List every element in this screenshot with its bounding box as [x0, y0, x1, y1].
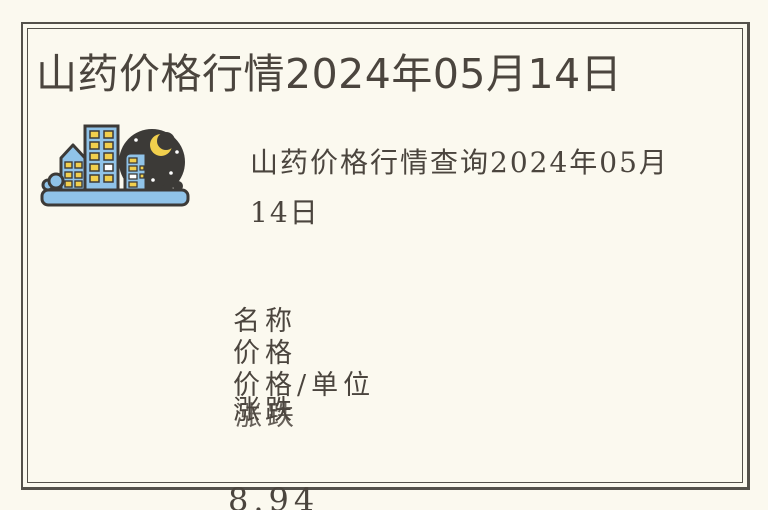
table-header-change: 涨跌	[233, 395, 533, 427]
night-city-skyline-icon	[40, 118, 190, 208]
ground-icon	[42, 190, 188, 205]
price-value: 8.94	[228, 481, 319, 510]
price-table-headers: 名称 价格 价格/单位 涨跌	[233, 306, 533, 427]
building-icon	[125, 153, 146, 190]
table-header-price: 价格	[233, 338, 533, 370]
page-title: 山药价格行情2024年05月14日	[36, 40, 696, 100]
table-header-name: 名称	[233, 306, 533, 338]
building-icon	[61, 145, 85, 190]
image-caption: 山药价格行情查询2024年05月14日	[250, 138, 690, 238]
article-page: 山药价格行情2024年05月14日	[0, 0, 768, 510]
cloud-bumps-icon	[43, 174, 63, 190]
building-icon	[85, 126, 118, 190]
